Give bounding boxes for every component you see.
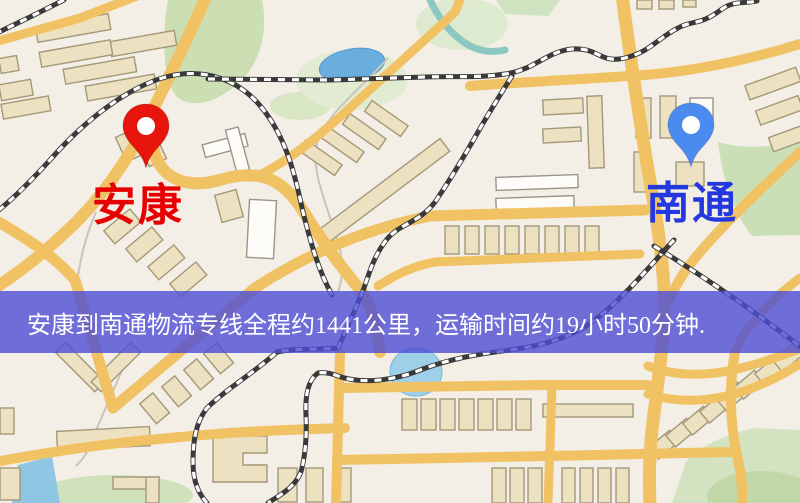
destination-label: 南通 <box>646 179 738 228</box>
map-viewport: 安康 南通 安康到南通物流专线全程约1441公里，运输时间约19小时50分钟. <box>0 0 800 503</box>
route-info-banner: 安康到南通物流专线全程约1441公里，运输时间约19小时50分钟. <box>0 291 800 353</box>
destination-pin-hole <box>682 116 700 134</box>
origin-label: 安康 <box>92 181 184 230</box>
origin-pin-hole <box>137 117 155 135</box>
map-canvas: 安康 南通 <box>0 0 800 503</box>
route-info-text: 安康到南通物流专线全程约1441公里，运输时间约19小时50分钟. <box>0 305 705 340</box>
